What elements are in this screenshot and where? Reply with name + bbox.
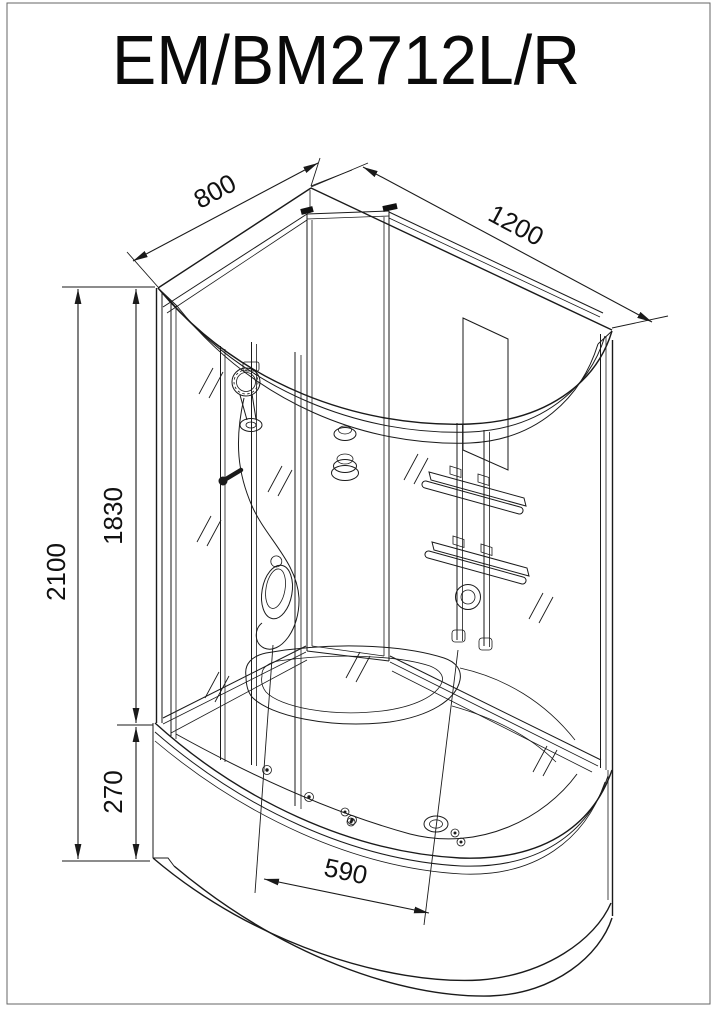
dim-inner-width-label: 590 — [322, 852, 371, 890]
dimension-depth-800: 800 — [127, 158, 352, 287]
tray-skirt — [153, 858, 611, 980]
rail-slider-handle — [226, 470, 241, 479]
shower-cabin-technical-drawing: EM/BM2712L/R — [0, 0, 711, 1015]
cabin-top-frame — [158, 188, 612, 330]
hand-shower-set — [219, 362, 300, 649]
dim-width-label: 1200 — [484, 198, 549, 252]
back-panel — [307, 211, 389, 661]
dim-tray-height-label: 270 — [98, 770, 128, 813]
glass-door-edges — [221, 342, 302, 809]
front-curved-rim — [158, 288, 612, 443]
shelf-rails — [452, 423, 492, 650]
cabin-drawing — [153, 188, 613, 996]
mixer-knobs — [332, 426, 359, 481]
mirror-panel — [463, 318, 508, 470]
dim-cabin-height-label: 1830 — [98, 487, 128, 545]
dimension-tray-height-270: 270 — [98, 727, 136, 859]
dimension-inner-width-590: 590 — [255, 645, 458, 925]
hydro-jets — [263, 766, 357, 825]
shower-tray — [153, 723, 612, 996]
soap-dish — [258, 554, 298, 621]
dim-total-height-label: 2100 — [41, 543, 71, 601]
dimension-width-1200: 1200 — [311, 163, 668, 328]
glass-shelf-upper — [422, 466, 526, 514]
drawing-title: EM/BM2712L/R — [112, 21, 580, 99]
drawing-sheet: EM/BM2712L/R — [0, 0, 711, 1015]
shower-hose — [238, 398, 299, 649]
dimension-cabin-height-1830: 1830 — [98, 289, 153, 725]
glass-shelf-lower — [425, 536, 529, 584]
